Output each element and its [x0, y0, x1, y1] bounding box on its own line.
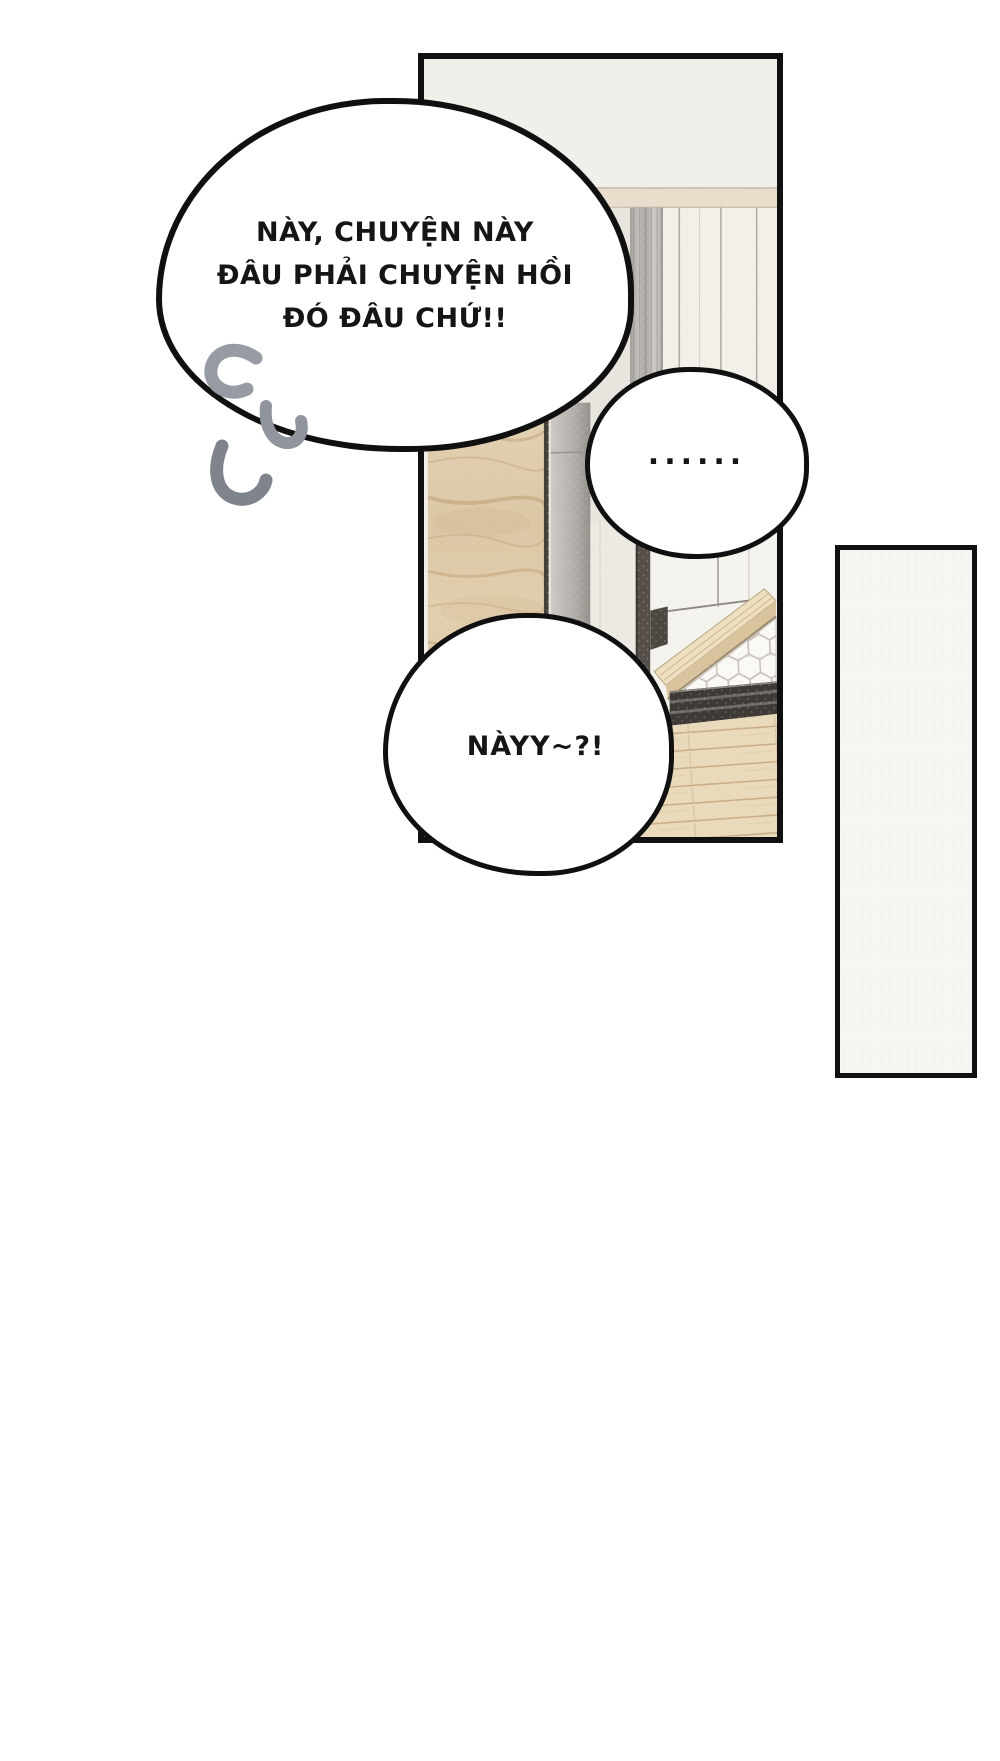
comic-page: NÀY, CHUYỆN NÀY ĐÂU PHẢI CHUYỆN HỒI ĐÓ Đ…	[0, 0, 1000, 1761]
tremble-marks-icon	[196, 342, 316, 510]
speech-line: NÀY, CHUYỆN NÀY	[217, 211, 573, 254]
speech-text-silence: ......	[648, 437, 746, 472]
speech-line: ĐÂU PHẢI CHUYỆN HỒI	[217, 254, 573, 297]
speech-bubble-silence: ......	[585, 367, 809, 559]
speech-text-call: NÀYY~?!	[453, 727, 605, 762]
side-panel	[835, 545, 977, 1078]
speech-text-main: NÀY, CHUYỆN NÀY ĐÂU PHẢI CHUYỆN HỒI ĐÓ Đ…	[217, 211, 573, 340]
speech-bubble-call: NÀYY~?!	[383, 613, 674, 876]
speech-line: ĐÓ ĐÂU CHỨ!!	[217, 297, 573, 340]
